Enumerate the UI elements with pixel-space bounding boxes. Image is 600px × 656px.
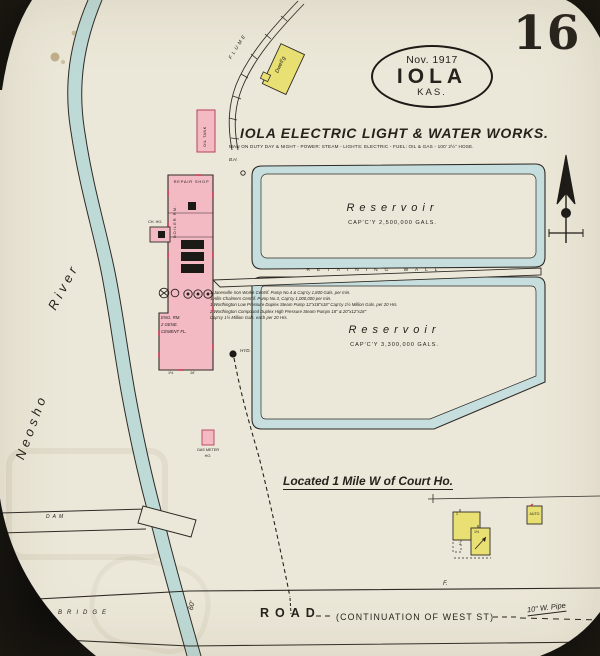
sanborn-map-page: 16 Nov. 1917 IOLA KAS. IOLA ELECTRIC LIG… <box>0 0 600 656</box>
gas-meter-label: GAS METER <box>190 448 226 452</box>
gas-meter-house <box>202 430 214 445</box>
dam-label: DAM <box>46 515 66 521</box>
reservoir-north <box>252 164 545 269</box>
boilers <box>181 240 204 273</box>
storey-mark: 1 <box>456 513 458 517</box>
machinery-notes: 1 Janesville Iron Works Centrif. Pump No… <box>210 290 398 321</box>
reservoir-south-label: Reservoir <box>332 324 457 336</box>
date-stamp: Nov. 1917 IOLA KAS. <box>371 45 493 108</box>
reservoir-north-capacity: CAP'C'Y 2,500,000 GALS. <box>325 220 460 226</box>
borehole-symbol <box>241 171 245 175</box>
storey-mark: 2 <box>459 543 461 547</box>
chimney <box>188 202 196 210</box>
auto-shed-label: AUTO <box>527 513 542 517</box>
engine-room-label: ENG. RM. <box>161 316 181 321</box>
chemical-house-label: CH. HO. <box>148 220 162 224</box>
generators-label: 2 GENE. <box>161 323 178 328</box>
hydrant-label: HYD. <box>240 349 251 354</box>
chemical-house <box>150 227 170 242</box>
power-plant-building <box>159 175 213 370</box>
house-building <box>453 509 491 558</box>
fence-mark-label: F. <box>443 581 448 588</box>
boiler-room-label: BOILER RM. <box>173 205 177 238</box>
stamp-city: IOLA <box>373 66 491 87</box>
map-drawing <box>0 0 600 656</box>
bridge-label: BRIDGE <box>58 610 111 617</box>
oil-tank-label: OIL TANK <box>203 126 207 147</box>
cement-floor-label: CEMENT FL. <box>161 330 187 335</box>
road-label: ROAD <box>260 607 321 621</box>
map-subtitle: MAN ON DUTY DAY & NIGHT - POWER: STEAM -… <box>229 144 474 149</box>
gas-meter-label-2: HO. <box>190 454 226 458</box>
map-title: IOLA ELECTRIC LIGHT & WATER WORKS. <box>240 125 549 141</box>
retaining-wall-label: RETAINING WALL <box>278 268 473 273</box>
reservoir-south-capacity: CAP'C'Y 3,300,000 GALS. <box>327 342 462 348</box>
repair-shop-label: REPAIR SHOP <box>170 180 213 184</box>
borehole-label: B.H. <box>229 158 238 163</box>
dimension-mark: 16' <box>190 371 195 375</box>
road-continuation-label: (CONTINUATION OF WEST ST) <box>336 613 494 623</box>
dimension-mark: 1½ <box>168 371 173 375</box>
machinery-note-line: 1 Worthington Low Pressure Duplex Steam … <box>210 302 398 308</box>
machinery-note-line: Cap'cy 1½ Million Gals. each per 20 Hrs. <box>210 315 398 321</box>
stamp-state: KAS. <box>373 87 491 98</box>
storey-mark: 1½ <box>474 531 479 535</box>
location-note: Located 1 Mile W of Court Ho. <box>283 475 453 490</box>
north-arrow-icon <box>549 155 583 243</box>
hydrant-symbol <box>229 350 236 357</box>
page-number: 16 <box>513 6 580 61</box>
reservoir-north-label: Reservoir <box>330 202 455 214</box>
fence-line <box>428 494 600 503</box>
